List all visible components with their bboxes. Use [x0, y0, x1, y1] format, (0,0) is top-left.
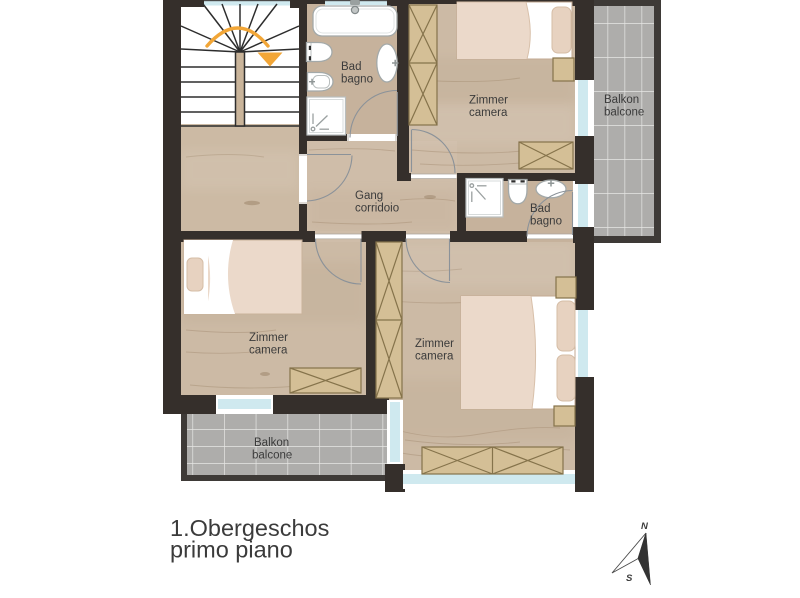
svg-text:Bad: Bad	[341, 61, 361, 73]
svg-text:primo piano: primo piano	[170, 537, 293, 563]
svg-text:balcone: balcone	[252, 450, 292, 462]
svg-text:S: S	[626, 573, 633, 584]
svg-text:N: N	[641, 521, 649, 532]
svg-text:camera: camera	[415, 351, 454, 363]
svg-text:Balkon: Balkon	[254, 437, 289, 449]
svg-text:Balkon: Balkon	[604, 94, 639, 106]
svg-text:balcone: balcone	[604, 107, 644, 119]
svg-text:Zimmer: Zimmer	[469, 95, 508, 107]
svg-text:Bad: Bad	[530, 203, 550, 215]
svg-text:Gang: Gang	[355, 190, 383, 202]
svg-text:camera: camera	[469, 107, 508, 119]
svg-text:bagno: bagno	[530, 216, 562, 228]
svg-text:camera: camera	[249, 345, 288, 357]
svg-text:corridoio: corridoio	[355, 203, 399, 215]
svg-text:bagno: bagno	[341, 74, 373, 86]
svg-text:Zimmer: Zimmer	[249, 332, 288, 344]
svg-text:Zimmer: Zimmer	[415, 338, 454, 350]
